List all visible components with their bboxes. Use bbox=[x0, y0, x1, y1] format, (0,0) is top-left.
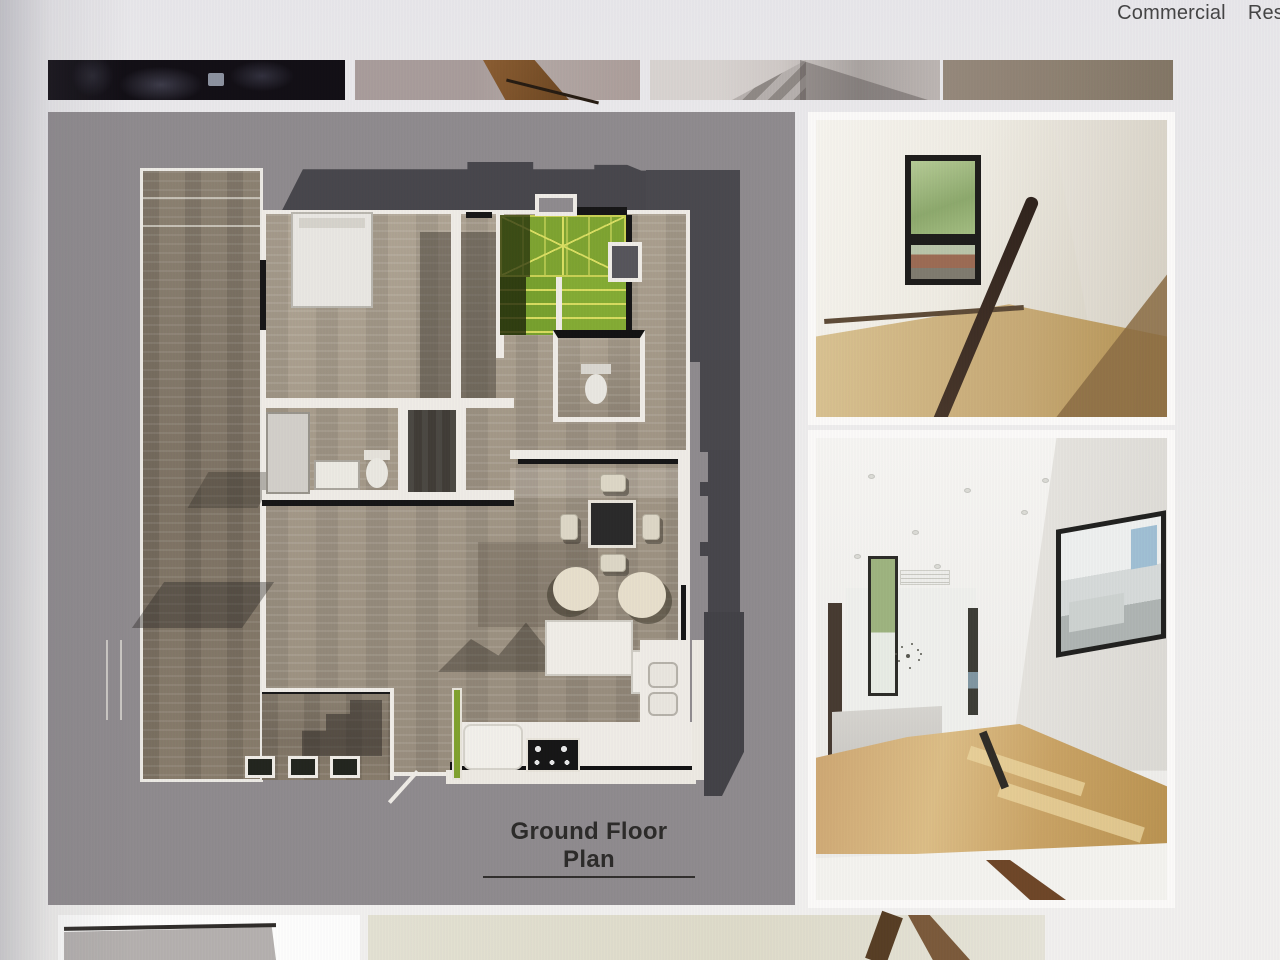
narrow-window bbox=[968, 608, 978, 715]
dining-chair bbox=[600, 474, 626, 492]
bed bbox=[291, 212, 373, 308]
thumbnail-logo-mark bbox=[208, 73, 224, 86]
wall-edge-black bbox=[262, 500, 514, 506]
lounge-chair bbox=[553, 567, 599, 611]
outdoor-notch bbox=[262, 688, 394, 780]
nav-item-residential-truncated[interactable]: Res bbox=[1248, 2, 1280, 25]
gallery-thumbnail-partial-stair[interactable] bbox=[368, 915, 1045, 960]
toilet bbox=[581, 364, 611, 374]
dining-table bbox=[588, 500, 636, 548]
recessed-light bbox=[1021, 510, 1028, 515]
window-slit bbox=[260, 260, 266, 330]
dining-wall bbox=[510, 450, 690, 459]
recessed-light bbox=[868, 474, 875, 479]
nav-item-commercial[interactable]: Commercial bbox=[1117, 2, 1226, 25]
building-through-window bbox=[1069, 593, 1124, 633]
side-clerestory-window bbox=[1056, 510, 1166, 657]
photo-stairwell-window[interactable] bbox=[808, 112, 1175, 425]
ground-floor-plan-image[interactable]: Ground Floor Plan bbox=[48, 112, 795, 905]
dining-chair bbox=[560, 514, 578, 540]
deck-joint-line bbox=[106, 640, 108, 720]
building-shadow-right bbox=[700, 360, 740, 452]
gallery-thumbnail-staircase[interactable] bbox=[650, 60, 940, 100]
green-accent-wall bbox=[452, 688, 462, 780]
kitchen-island bbox=[545, 620, 633, 676]
planter-box bbox=[288, 756, 318, 778]
window-slit bbox=[466, 212, 492, 218]
gray-wall-shape bbox=[64, 927, 276, 960]
deck-wood-strip bbox=[140, 168, 263, 782]
ceiling-vent bbox=[900, 570, 950, 585]
staircase-shadow bbox=[800, 60, 928, 100]
plan-title: Ground Floor Plan bbox=[483, 818, 695, 878]
gallery-thumbnail-stair-base[interactable] bbox=[355, 60, 640, 100]
exterior-step-shadow bbox=[302, 700, 382, 756]
photo-hallway-landing[interactable] bbox=[808, 430, 1175, 908]
dining-chair bbox=[600, 554, 626, 572]
bathroom-wall bbox=[398, 404, 406, 496]
refrigerator bbox=[463, 724, 523, 770]
toilet bbox=[366, 458, 388, 488]
building-shadow-lower-right bbox=[704, 612, 744, 796]
recessed-light bbox=[912, 530, 919, 535]
recessed-light bbox=[854, 554, 861, 559]
lounge-chair bbox=[618, 572, 666, 618]
staircase-shadow bbox=[500, 215, 530, 277]
closet bbox=[406, 408, 458, 494]
toilet bbox=[585, 374, 607, 404]
window-glass bbox=[871, 559, 895, 693]
photo-content bbox=[816, 438, 1167, 900]
staircase-shadow bbox=[500, 277, 526, 335]
wall-edge-black bbox=[518, 459, 680, 464]
dining-chair bbox=[642, 514, 660, 540]
bathroom-vanity bbox=[314, 460, 360, 490]
stair-window-bumpout bbox=[608, 242, 642, 282]
gallery-thumbnail-partial-left[interactable] bbox=[58, 915, 360, 960]
photo-content bbox=[816, 120, 1167, 417]
sputnik-chandelier bbox=[906, 654, 910, 658]
bathroom-wall bbox=[458, 404, 466, 496]
top-nav: Commercial Res bbox=[0, 0, 1280, 30]
recessed-light bbox=[1042, 478, 1049, 483]
building-shadow-right bbox=[708, 450, 740, 614]
bedroom-wall bbox=[451, 210, 461, 408]
wood-railing bbox=[865, 911, 903, 960]
bed-pillow bbox=[299, 218, 365, 228]
wood-railing-shadow bbox=[908, 915, 970, 960]
window-glass bbox=[1061, 516, 1161, 652]
planter-box bbox=[330, 756, 360, 778]
kitchen-sink bbox=[648, 662, 678, 688]
deck-plank-line bbox=[143, 225, 260, 227]
recessed-light bbox=[964, 488, 971, 493]
window-pane-lower bbox=[911, 245, 975, 279]
shadow-bump bbox=[700, 482, 709, 496]
blue-sign-through-window bbox=[1131, 525, 1157, 570]
staircase-steps-silhouette bbox=[732, 60, 806, 100]
window-pane-trees bbox=[911, 161, 975, 234]
gallery-thumbnail-dark-interior[interactable] bbox=[48, 60, 345, 100]
recessed-light bbox=[934, 564, 941, 569]
interior-wall bbox=[262, 398, 514, 408]
hall-end-window bbox=[868, 556, 898, 696]
planter-box bbox=[245, 756, 275, 778]
staircase-flight-right bbox=[562, 277, 626, 335]
window-divider bbox=[911, 234, 975, 245]
deck-plank-line bbox=[143, 197, 260, 199]
deck-joint-line bbox=[120, 640, 122, 720]
shadow-bump bbox=[700, 542, 709, 556]
shower bbox=[266, 412, 310, 494]
stairwell-window bbox=[905, 155, 981, 285]
cooktop bbox=[526, 738, 580, 772]
stair-window-bumpout bbox=[535, 194, 577, 216]
kitchen-sink bbox=[648, 692, 678, 716]
walkway bbox=[446, 770, 696, 784]
walkway bbox=[692, 640, 704, 780]
notch-wall-edge bbox=[262, 692, 390, 694]
gallery-thumbnail-wood-wall[interactable] bbox=[943, 60, 1173, 100]
